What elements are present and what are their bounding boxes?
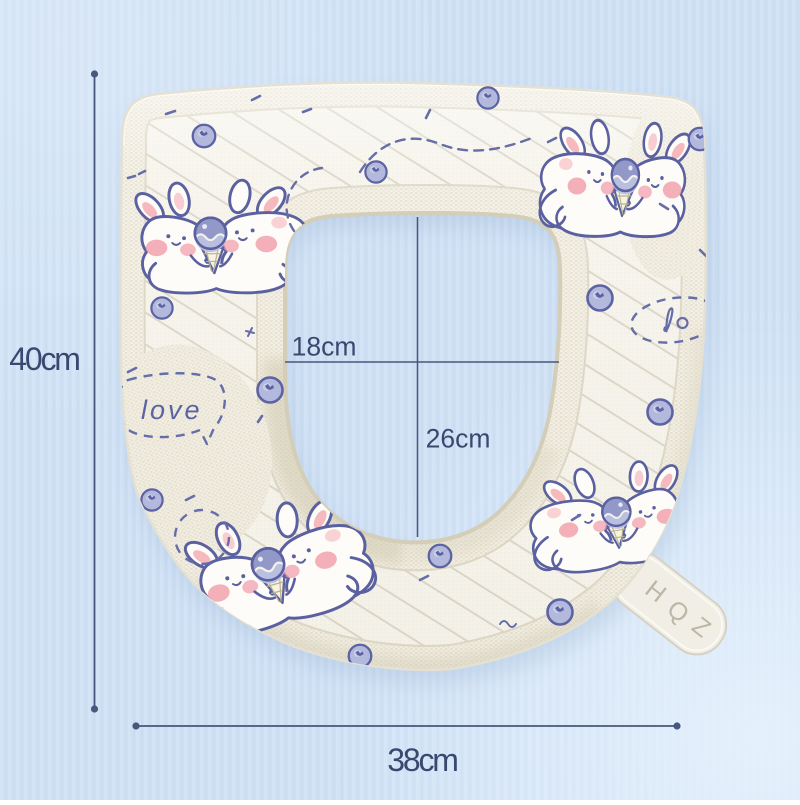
- svg-text:40cm: 40cm: [9, 341, 79, 377]
- svg-text:26cm: 26cm: [426, 424, 491, 454]
- svg-text:love: love: [141, 395, 203, 425]
- svg-text:18cm: 18cm: [292, 332, 357, 362]
- svg-text:38cm: 38cm: [387, 742, 457, 778]
